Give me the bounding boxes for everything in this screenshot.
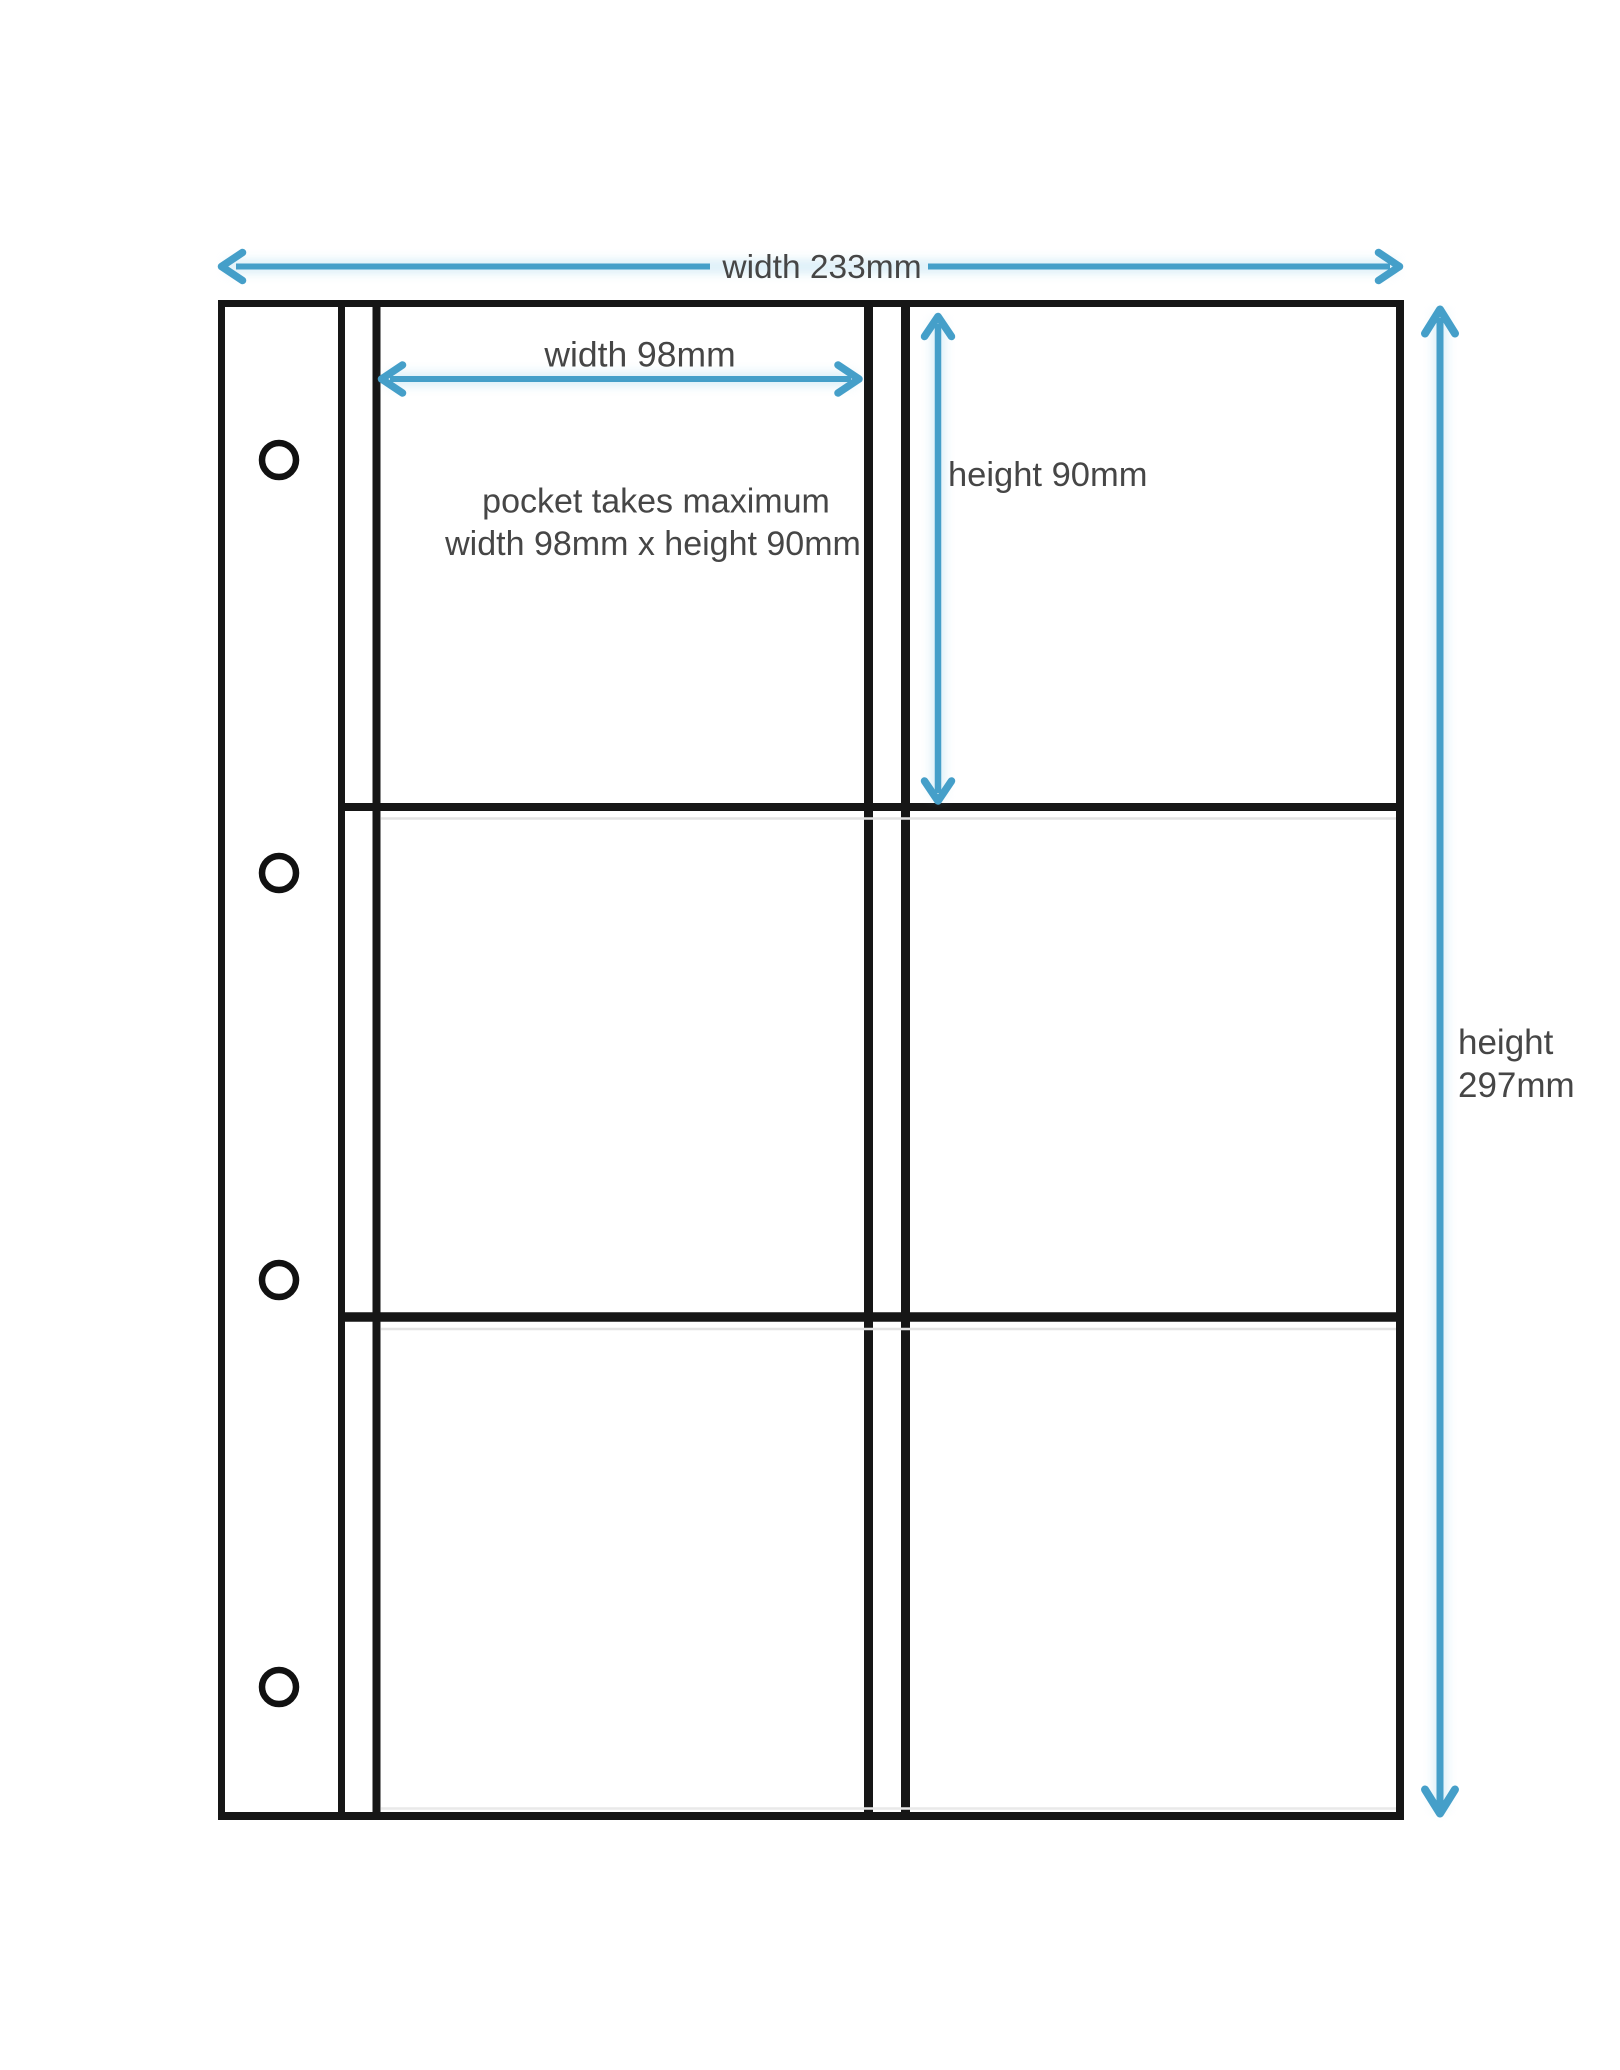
svg-text:297mm: 297mm <box>1458 1066 1575 1105</box>
svg-text:pocket takes maximum: pocket takes maximum <box>482 483 830 521</box>
svg-text:height 90mm: height 90mm <box>948 456 1147 494</box>
svg-text:width 233mm: width 233mm <box>721 249 921 286</box>
svg-text:width 98mm x height 90mm: width 98mm x height 90mm <box>444 525 861 563</box>
svg-text:width 98mm: width 98mm <box>543 335 735 375</box>
svg-text:height: height <box>1458 1023 1554 1062</box>
